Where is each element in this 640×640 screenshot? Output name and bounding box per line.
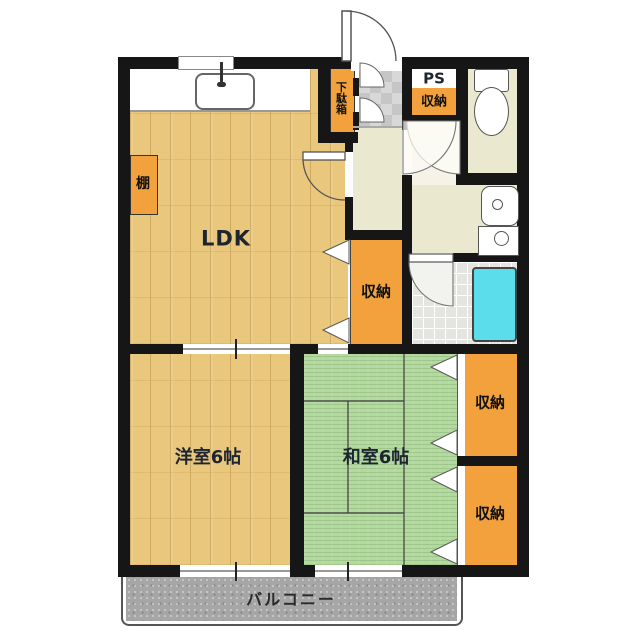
wall-closet-sep	[457, 456, 517, 466]
ldk-label: LDK	[201, 229, 251, 250]
wall-shoe-stub-a	[353, 78, 359, 96]
entry-tile-floor	[359, 71, 402, 127]
balcony-label: バルコニー	[246, 592, 336, 608]
wall-right	[517, 57, 529, 577]
pipe-space-label: PS	[423, 72, 445, 87]
entrance-door-leaf	[342, 11, 351, 61]
opening-entrance	[351, 57, 402, 71]
kitchen-faucet-tip	[217, 82, 226, 87]
opening-japanese-balcony	[315, 565, 402, 577]
wall-closet-top	[345, 230, 402, 240]
opening-ldk-western	[183, 344, 290, 354]
wall-left	[118, 57, 130, 577]
floor-plan: LDK 洋室6帖 和室6帖 収納 収納 収納 収納 下駄箱 棚 PS バルコニー	[0, 0, 640, 640]
bathtub	[472, 267, 517, 342]
kitchen-sink	[195, 73, 255, 110]
kitchen-window	[178, 56, 234, 70]
western-room-label: 洋室6帖	[175, 449, 242, 467]
tatami-closet-lower-label: 収納	[475, 507, 505, 522]
washbasin-drain	[492, 199, 503, 210]
opening-vestibule	[402, 130, 412, 175]
shelf-label: 棚	[136, 177, 150, 191]
wall-toilet-bottom	[456, 173, 529, 185]
wall-ldk-door-a	[345, 143, 353, 152]
wall-bottom-a	[118, 565, 180, 577]
japanese-room-label: 和室6帖	[343, 449, 410, 467]
hallway-floor	[353, 127, 402, 230]
wall-mid-c	[348, 344, 529, 354]
washing-machine-drain	[494, 231, 509, 246]
opening-ldk-door	[345, 152, 353, 197]
wall-entry-cap	[318, 132, 358, 143]
toilet-bowl	[474, 87, 509, 136]
wall-ps-bottom	[402, 115, 460, 123]
wall-toilet-left	[456, 57, 468, 177]
wall-bottom-c	[402, 565, 529, 577]
wall-bath-top-a	[402, 253, 409, 262]
ldk-closet-label: 収納	[361, 285, 391, 300]
kitchen-faucet	[220, 62, 223, 84]
shoe-cabinet-label: 下駄箱	[336, 82, 347, 115]
opening-ldk-japanese	[318, 344, 348, 354]
entry-storage-label: 収納	[421, 96, 447, 109]
wall-mid-a	[118, 344, 183, 354]
wall-shoe-stub-b	[353, 112, 359, 130]
bathroom-door-leaf	[409, 254, 453, 262]
tatami-closet-upper-label: 収納	[475, 396, 505, 411]
entrance-door-arc	[346, 11, 396, 61]
wall-room-divider	[290, 344, 304, 577]
opening-western-balcony	[180, 565, 290, 577]
wall-entry-left	[318, 57, 330, 143]
